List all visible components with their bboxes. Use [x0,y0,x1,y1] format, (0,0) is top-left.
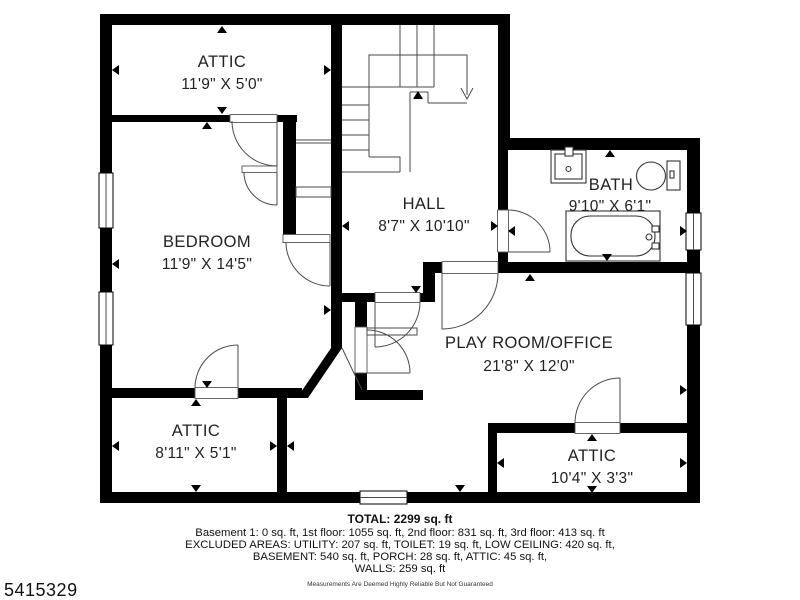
svg-text:10'4" X 3'3": 10'4" X 3'3" [551,470,634,487]
window [99,173,113,228]
diagonal-wall [297,348,342,398]
svg-text:PLAY ROOM/OFFICE: PLAY ROOM/OFFICE [445,334,613,352]
svg-text:HALL: HALL [403,195,446,213]
excluded-areas-3: WALLS: 259 sq. ft [355,563,446,575]
svg-text:8'11" X 5'1": 8'11" X 5'1" [155,445,236,462]
room-label-attic-top: ATTIC 11'9" X 5'0" [181,53,262,93]
svg-text:21'8" X 12'0": 21'8" X 12'0" [483,358,575,375]
plan-id: 5415329 [4,580,78,600]
door [195,345,238,388]
floor-breakdown: Basement 1: 0 sq. ft, 1st floor: 1055 sq… [195,527,605,539]
door [575,378,620,423]
floor-plan-page: ATTIC 11'9" X 5'0" BEDROOM 11'9" X 14'5"… [0,0,800,600]
svg-text:11'9" X 5'0": 11'9" X 5'0" [181,76,262,93]
room-label-bedroom: BEDROOM 11'9" X 14'5" [162,233,252,273]
bathtub-icon [566,211,660,261]
room-label-attic-bottom-left: ATTIC 8'11" X 5'1" [155,422,236,462]
door [244,172,277,205]
svg-text:ATTIC: ATTIC [568,447,616,465]
window [360,491,407,504]
door [286,242,330,286]
svg-text:ATTIC: ATTIC [198,53,246,71]
svg-text:11'9" X 14'5": 11'9" X 14'5" [162,256,252,273]
svg-text:8'7" X 10'10": 8'7" X 10'10" [378,218,470,235]
door [442,273,498,329]
door [232,121,277,166]
disclaimer: Measurements Are Deemed Highly Reliable … [307,581,493,588]
window [99,292,113,345]
window [686,273,701,325]
window [686,213,701,250]
floor-plan: ATTIC 11'9" X 5'0" BEDROOM 11'9" X 14'5"… [0,0,800,600]
door [375,302,420,347]
area-summary: TOTAL: 2299 sq. ft Basement 1: 0 sq. ft,… [185,512,615,588]
svg-text:9'10" X 6'1": 9'10" X 6'1" [569,198,652,215]
room-label-attic-bottom-right: ATTIC 10'4" X 3'3" [551,447,634,487]
staircase [342,25,473,172]
toilet-icon [637,161,681,190]
sink-icon [551,147,586,183]
room-label-playroom: PLAY ROOM/OFFICE 21'8" X 12'0" [445,334,613,375]
svg-text:BEDROOM: BEDROOM [163,233,251,251]
room-label-hall: HALL 8'7" X 10'10" [378,195,470,235]
excluded-areas-2: BASEMENT: 540 sq. ft, PORCH: 28 sq. ft, … [253,551,547,563]
svg-text:BATH: BATH [589,176,633,194]
svg-text:ATTIC: ATTIC [172,422,220,440]
total-area: TOTAL: 2299 sq. ft [348,512,453,526]
excluded-areas-1: EXCLUDED AREAS: UTILITY: 207 sq. ft, TOI… [185,539,615,551]
